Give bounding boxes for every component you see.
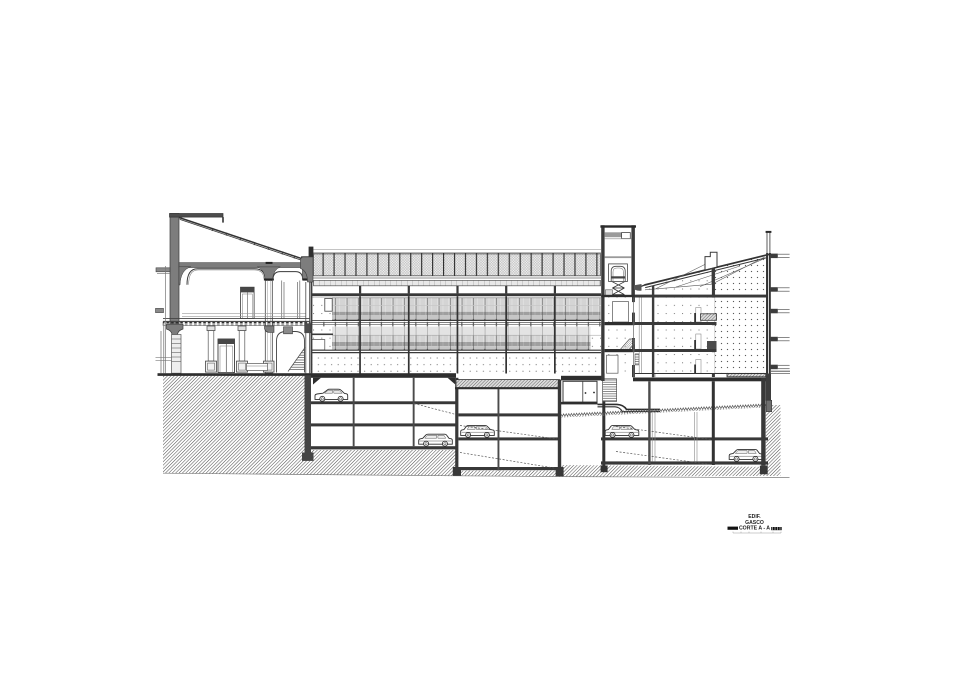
- svg-text:CORTE A - A: CORTE A - A: [739, 526, 770, 532]
